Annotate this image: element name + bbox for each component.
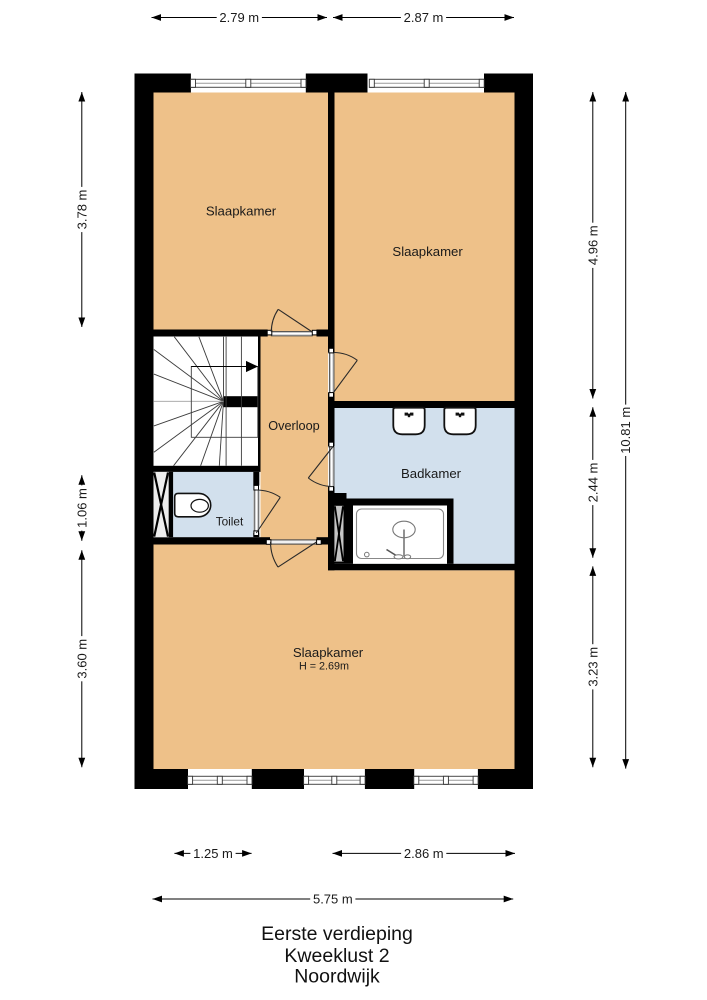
svg-text:3.60 m: 3.60 m	[74, 639, 89, 679]
svg-text:3.78 m: 3.78 m	[74, 190, 89, 230]
svg-text:Badkamer: Badkamer	[401, 466, 462, 481]
svg-text:2.86 m: 2.86 m	[404, 846, 444, 861]
svg-text:1.06 m: 1.06 m	[74, 488, 89, 528]
svg-text:Slaapkamer: Slaapkamer	[293, 645, 364, 660]
svg-text:Slaapkamer: Slaapkamer	[392, 244, 463, 259]
svg-text:H = 2.69m: H = 2.69m	[299, 661, 349, 673]
svg-text:10.81 m: 10.81 m	[618, 407, 633, 454]
svg-text:Noordwijk: Noordwijk	[294, 965, 380, 987]
svg-text:1.25 m: 1.25 m	[193, 846, 233, 861]
svg-text:4.96 m: 4.96 m	[585, 225, 600, 265]
svg-text:Eerste verdieping: Eerste verdieping	[261, 923, 413, 945]
svg-text:3.23 m: 3.23 m	[585, 647, 600, 687]
svg-text:2.44 m: 2.44 m	[585, 463, 600, 503]
svg-text:5.75 m: 5.75 m	[313, 892, 353, 907]
svg-text:Overloop: Overloop	[268, 419, 319, 433]
svg-text:Kweeklust 2: Kweeklust 2	[284, 945, 389, 967]
svg-text:2.79 m: 2.79 m	[219, 10, 259, 25]
svg-text:2.87 m: 2.87 m	[404, 10, 444, 25]
svg-text:Slaapkamer: Slaapkamer	[206, 204, 277, 219]
svg-text:Toilet: Toilet	[216, 515, 244, 529]
